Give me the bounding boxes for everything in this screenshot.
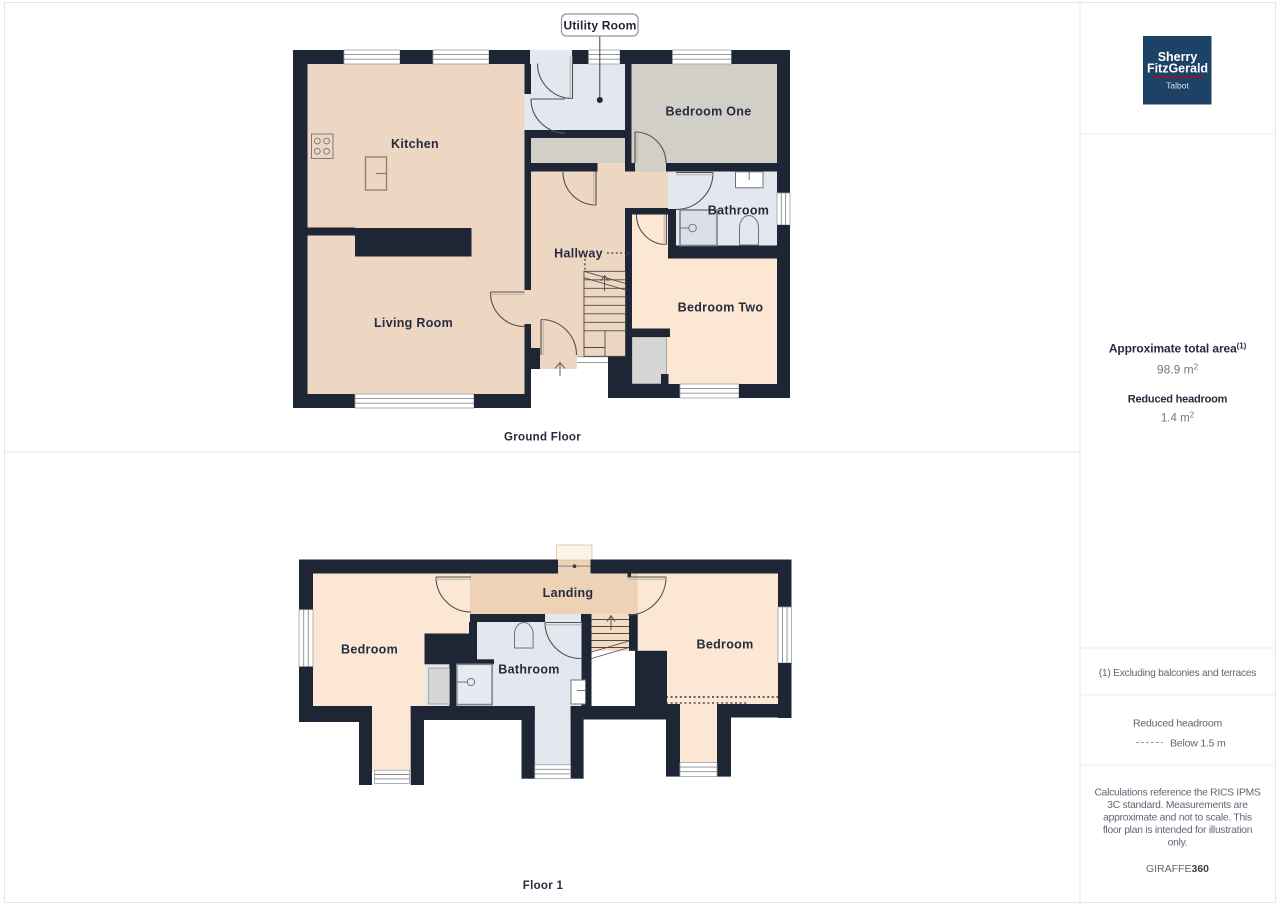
- svg-text:Floor 1: Floor 1: [523, 880, 564, 892]
- svg-text:Bedroom: Bedroom: [697, 638, 754, 652]
- svg-text:only.: only.: [1168, 838, 1188, 849]
- svg-text:Approximate total area(1): Approximate total area(1): [1109, 342, 1247, 356]
- svg-text:Bedroom: Bedroom: [341, 643, 398, 657]
- svg-text:1.4 m2: 1.4 m2: [1161, 411, 1195, 425]
- svg-text:Bathroom: Bathroom: [498, 663, 559, 677]
- svg-text:Kitchen: Kitchen: [391, 137, 439, 151]
- svg-text:(1) Excluding balconies and te: (1) Excluding balconies and terraces: [1099, 668, 1257, 679]
- svg-text:Bedroom One: Bedroom One: [666, 105, 752, 119]
- svg-text:GIRAFFE360: GIRAFFE360: [1146, 863, 1209, 875]
- svg-text:FitzGerald: FitzGerald: [1147, 62, 1208, 76]
- svg-text:Ground Floor: Ground Floor: [504, 432, 581, 444]
- svg-text:Talbot: Talbot: [1166, 81, 1189, 91]
- svg-text:Living Room: Living Room: [374, 316, 453, 330]
- svg-text:Bedroom Two: Bedroom Two: [678, 301, 764, 315]
- svg-text:Reduced headroom: Reduced headroom: [1133, 718, 1222, 730]
- svg-text:Bathroom: Bathroom: [708, 204, 769, 218]
- svg-text:Landing: Landing: [543, 586, 594, 600]
- svg-text:Reduced headroom: Reduced headroom: [1128, 394, 1228, 406]
- svg-text:approximate and not to scale.: approximate and not to scale. This: [1103, 813, 1252, 824]
- svg-text:Hallway: Hallway: [554, 247, 603, 261]
- svg-text:Calculations reference the RIC: Calculations reference the RICS IPMS: [1094, 788, 1261, 799]
- svg-text:Utility Room: Utility Room: [563, 19, 636, 33]
- svg-text:98.9 m2: 98.9 m2: [1157, 363, 1199, 377]
- svg-text:Below 1.5 m: Below 1.5 m: [1170, 738, 1226, 750]
- svg-text:3C standard. Measurements are: 3C standard. Measurements are: [1107, 800, 1248, 811]
- svg-text:floor plan is intended for ill: floor plan is intended for illustration: [1103, 825, 1253, 836]
